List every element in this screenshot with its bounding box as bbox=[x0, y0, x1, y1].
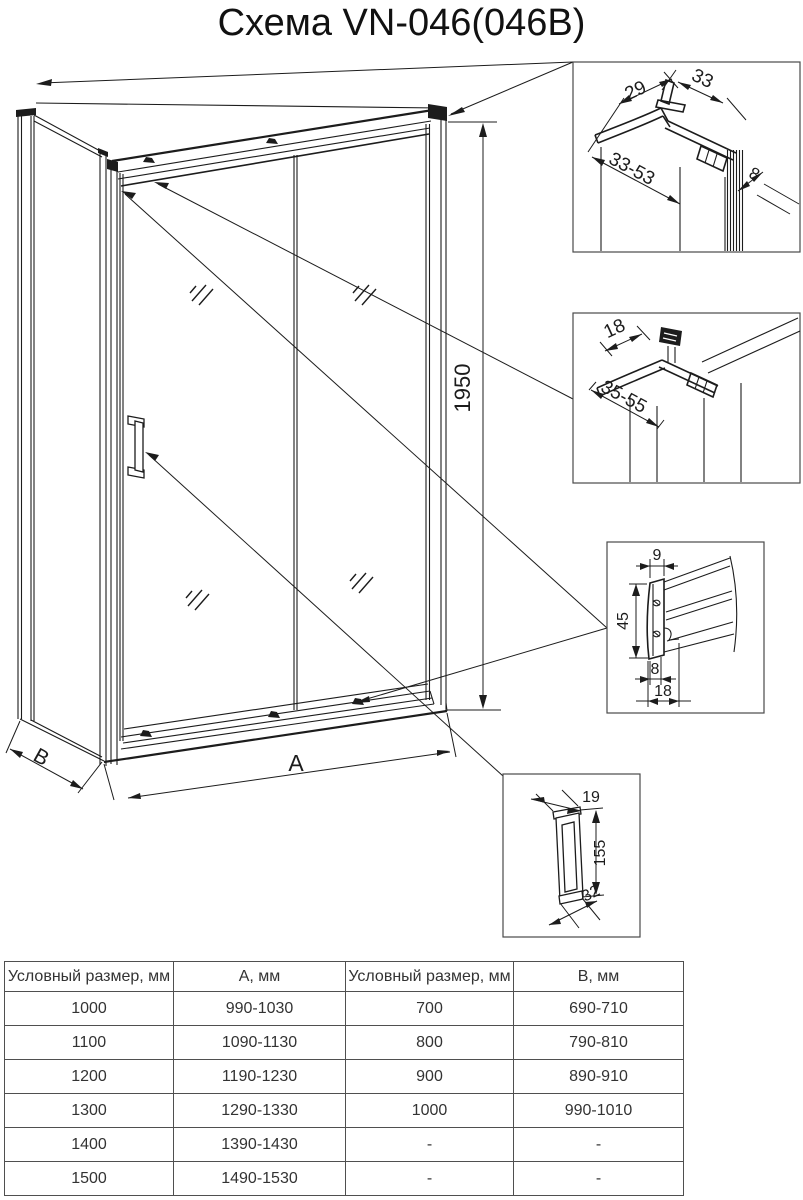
leader-lines bbox=[36, 62, 607, 776]
table-cell: - bbox=[514, 1128, 684, 1162]
table-header-cell: Условный размер, мм bbox=[346, 962, 514, 992]
dim-155: 155 bbox=[592, 840, 609, 867]
table-cell: 890-910 bbox=[514, 1060, 684, 1094]
dim-8b: 8 bbox=[651, 661, 660, 678]
detail-box-top-rail-profile: 18 35-55 bbox=[573, 313, 800, 483]
detail-box-bottom-profile: 9 45 8 18 bbox=[607, 542, 764, 713]
table-row: 1100 1090-1130 800 790-810 bbox=[5, 1026, 684, 1060]
glass-mark bbox=[186, 590, 209, 610]
table-header-row: Условный размер, мм А, мм Условный разме… bbox=[5, 962, 684, 992]
table-cell: 1090-1130 bbox=[174, 1026, 346, 1060]
table-row: 1400 1390-1430 - - bbox=[5, 1128, 684, 1162]
table-cell: 1190-1230 bbox=[174, 1060, 346, 1094]
side-panel bbox=[16, 103, 440, 766]
dim-45: 45 bbox=[615, 612, 632, 630]
detail-box-wall-profile: 29 33 33-53 8 bbox=[573, 62, 800, 252]
dim-9: 9 bbox=[653, 547, 662, 564]
door-handle bbox=[128, 416, 144, 478]
table-cell: 690-710 bbox=[514, 992, 684, 1026]
table-cell: - bbox=[514, 1162, 684, 1196]
table-cell: 900 bbox=[346, 1060, 514, 1094]
glass-mark bbox=[190, 285, 213, 305]
table-cell: 1490-1530 bbox=[174, 1162, 346, 1196]
table-cell: 1100 bbox=[5, 1026, 174, 1060]
table-cell: 1300 bbox=[5, 1094, 174, 1128]
table-cell: 990-1030 bbox=[174, 992, 346, 1026]
table-row: 1000 990-1030 700 690-710 bbox=[5, 992, 684, 1026]
height-value: 1950 bbox=[450, 364, 475, 413]
table-cell: 790-810 bbox=[514, 1026, 684, 1060]
table-header-cell: А, мм bbox=[174, 962, 346, 992]
detail-box-handle: 19 155 32 bbox=[503, 774, 640, 937]
table-header-cell: В, мм bbox=[514, 962, 684, 992]
dimension-height: 1950 bbox=[445, 122, 501, 710]
table-header-cell: Условный размер, мм bbox=[5, 962, 174, 992]
dim-35-55: 35-55 bbox=[597, 376, 650, 417]
depth-label: B bbox=[29, 744, 52, 771]
dim-19: 19 bbox=[582, 789, 600, 806]
table-cell: 800 bbox=[346, 1026, 514, 1060]
width-label: A bbox=[288, 750, 304, 776]
table-cell: 700 bbox=[346, 992, 514, 1026]
dim-18b: 18 bbox=[654, 683, 672, 700]
schematic-drawing: 1950 A B 29 bbox=[0, 0, 803, 958]
glass-mark bbox=[350, 573, 373, 593]
glass-marks bbox=[186, 285, 376, 610]
table-cell: - bbox=[346, 1128, 514, 1162]
table-cell: 990-1010 bbox=[514, 1094, 684, 1128]
front-frame bbox=[107, 104, 447, 765]
table-cell: 1000 bbox=[5, 992, 174, 1026]
table-cell: 1200 bbox=[5, 1060, 174, 1094]
dim-33-53: 33-53 bbox=[605, 148, 658, 189]
dim-18: 18 bbox=[601, 315, 629, 343]
table-row: 1500 1490-1530 - - bbox=[5, 1162, 684, 1196]
table-cell: 1400 bbox=[5, 1128, 174, 1162]
table-cell: 1500 bbox=[5, 1162, 174, 1196]
table-cell: 1390-1430 bbox=[174, 1128, 346, 1162]
table-row: 1200 1190-1230 900 890-910 bbox=[5, 1060, 684, 1094]
table-cell: 1290-1330 bbox=[174, 1094, 346, 1128]
spec-table: Условный размер, мм А, мм Условный разме… bbox=[4, 961, 684, 1196]
table-row: 1300 1290-1330 1000 990-1010 bbox=[5, 1094, 684, 1128]
table-cell: - bbox=[346, 1162, 514, 1196]
table-cell: 1000 bbox=[346, 1094, 514, 1128]
schematic-page: Схема VN-046(046B) bbox=[0, 0, 803, 1200]
